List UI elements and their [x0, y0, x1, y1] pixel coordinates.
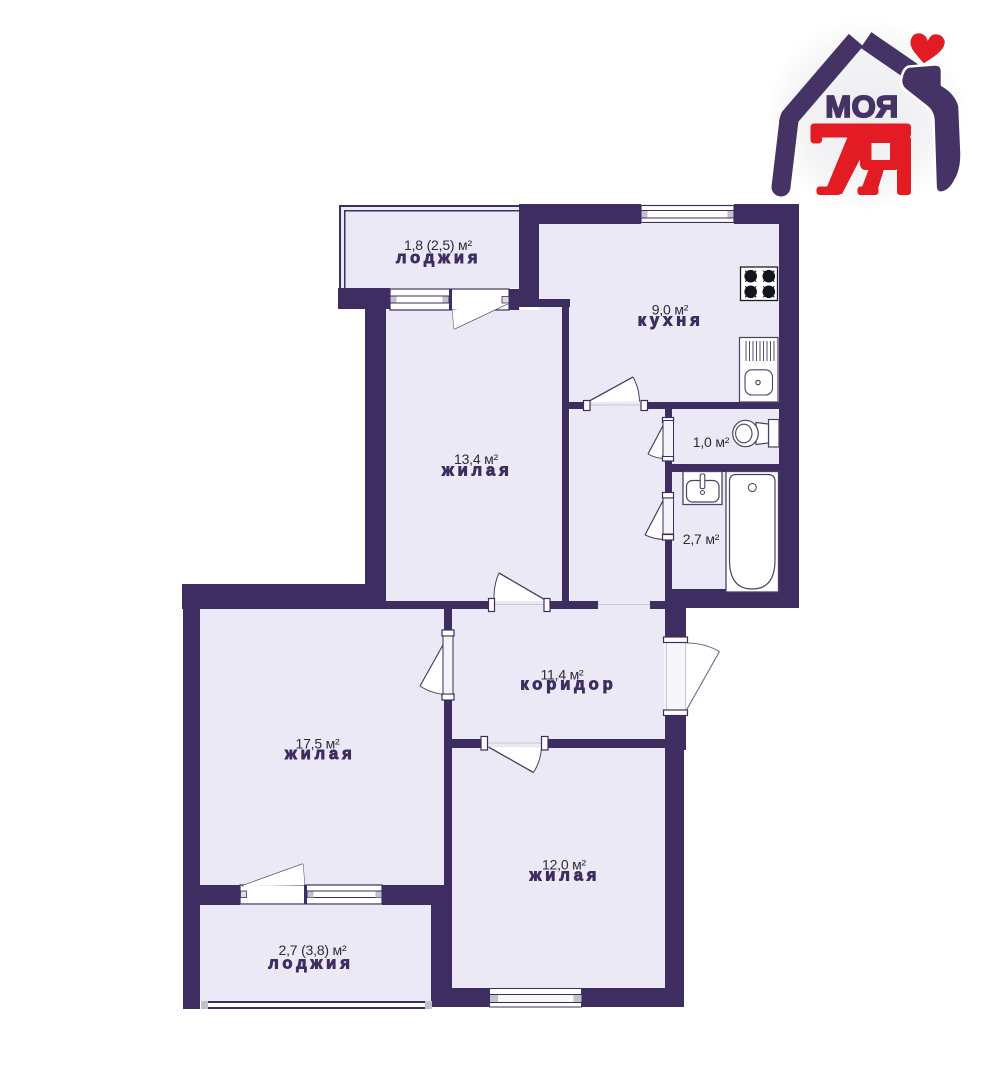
svg-text:1,0 м²: 1,0 м² — [693, 434, 730, 450]
svg-text:лоджия: лоджия — [268, 955, 353, 973]
svg-text:жилая: жилая — [529, 867, 601, 885]
svg-text:коридор: коридор — [520, 676, 616, 694]
svg-text:2,7 м²: 2,7 м² — [683, 531, 720, 547]
svg-text:лоджия: лоджия — [396, 249, 481, 267]
svg-text:МОЯ: МОЯ — [825, 89, 898, 124]
svg-text:кухня: кухня — [638, 312, 704, 330]
svg-text:жилая: жилая — [441, 462, 513, 480]
svg-text:жилая: жилая — [284, 745, 356, 763]
